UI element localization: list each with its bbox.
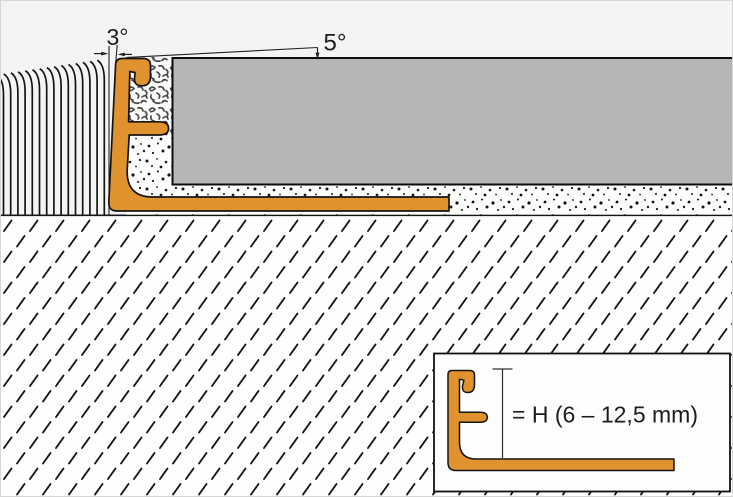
surface-angle-label: 5° bbox=[324, 30, 347, 57]
technical-diagram-page: 3° 5° = H (6 – 12,5 mm) bbox=[0, 0, 733, 497]
tile bbox=[173, 58, 733, 185]
inset-detail-box: = H (6 – 12,5 mm) bbox=[434, 354, 730, 492]
wall-angle-label: 3° bbox=[107, 24, 129, 50]
inset-height-label: = H (6 – 12,5 mm) bbox=[512, 402, 698, 428]
profile-installation-diagram: 3° 5° = H (6 – 12,5 mm) bbox=[1, 1, 733, 497]
